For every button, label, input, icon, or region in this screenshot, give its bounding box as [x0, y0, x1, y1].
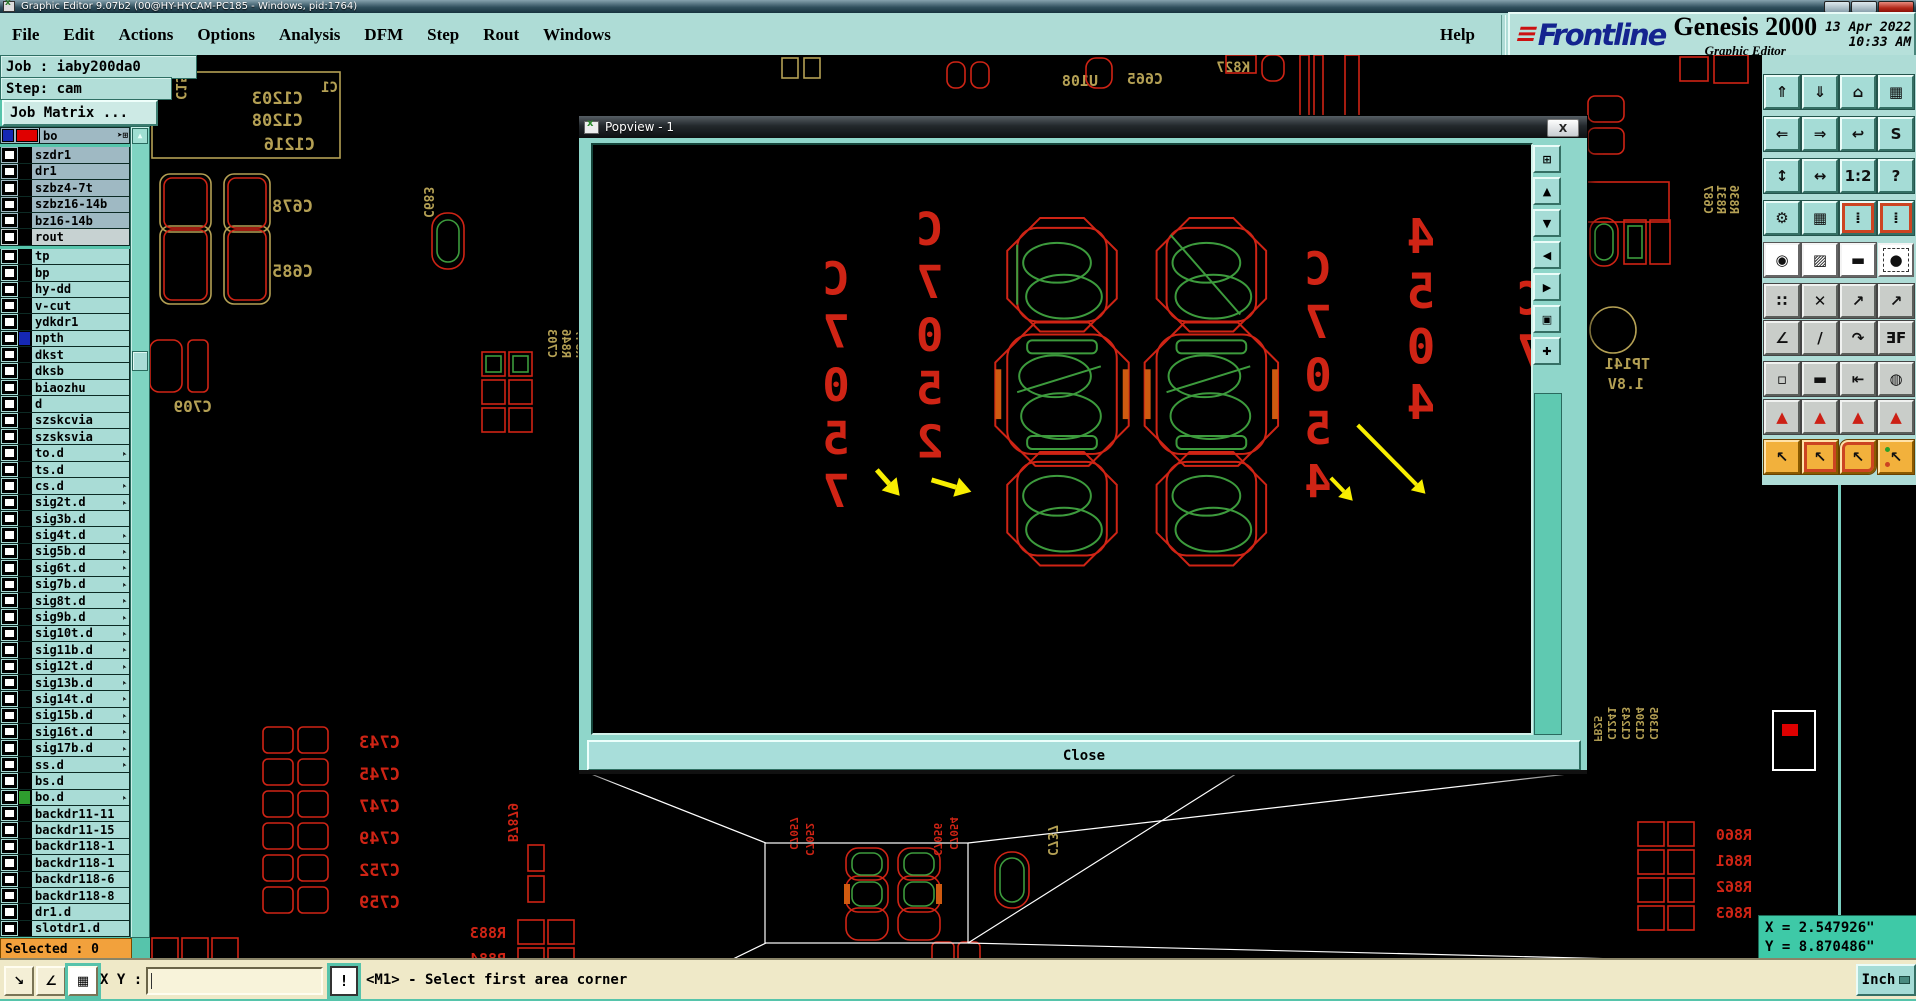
- layer-color-gutter[interactable]: [18, 659, 31, 674]
- layer-name[interactable]: sig7b.d➤: [31, 577, 129, 592]
- layer-row-rout[interactable]: rout: [0, 229, 130, 245]
- layer-row-sig15b.d[interactable]: sig15b.d➤: [0, 708, 130, 724]
- alert-button[interactable]: !: [330, 966, 358, 996]
- layer-checkbox[interactable]: [2, 364, 17, 377]
- layer-row-ydkdr1[interactable]: ydkdr1: [0, 314, 130, 330]
- layer-row-to.d[interactable]: to.d➤: [0, 445, 130, 461]
- layer-checkbox[interactable]: [2, 332, 17, 345]
- layer-name[interactable]: backdr118-1: [31, 839, 129, 854]
- layer-color-gutter[interactable]: [18, 380, 31, 395]
- layer-color-gutter[interactable]: [18, 708, 31, 723]
- layer-row-slotdr1.d[interactable]: slotdr1.d: [0, 921, 130, 937]
- layer-name[interactable]: sig5b.d➤: [31, 544, 129, 559]
- layer-name[interactable]: sig2t.d➤: [31, 495, 129, 510]
- window-title: Graphic Editor 9.07b2 (00@HY-HYCAM-PC185…: [21, 1, 357, 12]
- layer-color-gutter[interactable]: [18, 213, 31, 228]
- layer-checkbox[interactable]: [2, 479, 17, 492]
- truncate-3-button[interactable]: ▲: [1840, 400, 1876, 434]
- popview-canvas[interactable]: C7057C7052C70544504C7: [591, 143, 1533, 735]
- layer-row-bs.d[interactable]: bs.d: [0, 773, 130, 789]
- layer-name[interactable]: sig6t.d➤: [31, 560, 129, 575]
- layer-row-sig8t.d[interactable]: sig8t.d➤: [0, 593, 130, 609]
- coordinate-y: Y = 8.870486": [1765, 938, 1916, 956]
- layer-checkbox[interactable]: [2, 709, 17, 722]
- tools-setup-button[interactable]: ⚙: [1764, 201, 1800, 235]
- layer-checkbox[interactable]: [2, 283, 17, 296]
- segment-button[interactable]: ▬: [1802, 362, 1838, 396]
- select-pad-button[interactable]: ●: [1878, 243, 1914, 277]
- layer-name[interactable]: szbz4-7t: [31, 180, 129, 195]
- layer-color-gutter[interactable]: [18, 527, 31, 542]
- job-matrix-button[interactable]: Job Matrix ...: [2, 100, 158, 126]
- grid-button[interactable]: ▦: [1802, 201, 1838, 235]
- surface-button[interactable]: ◍: [1878, 362, 1914, 396]
- menu-item-help[interactable]: Help: [1428, 25, 1487, 45]
- layer-row-szskcvia[interactable]: szskcvia: [0, 413, 130, 429]
- layer-checkbox[interactable]: [2, 414, 17, 427]
- layer-row-sig2t.d[interactable]: sig2t.d➤: [0, 495, 130, 511]
- layer-checkbox[interactable]: [2, 381, 17, 394]
- copy-feature-button[interactable]: ↗: [1840, 284, 1876, 318]
- layer-checkbox[interactable]: [2, 266, 17, 279]
- layer-name[interactable]: sig11b.d➤: [31, 642, 129, 657]
- layer-checkbox[interactable]: [2, 181, 17, 194]
- route-path-button[interactable]: S: [1878, 117, 1914, 151]
- layer-color-gutter[interactable]: [18, 478, 31, 493]
- layer-row-backdr11-11[interactable]: backdr11-11: [0, 806, 130, 822]
- layer-color-gutter[interactable]: [18, 197, 31, 212]
- layer-name[interactable]: bs.d: [31, 773, 129, 788]
- layer-name[interactable]: bp: [31, 265, 129, 280]
- layer-color-gutter[interactable]: [18, 511, 31, 526]
- layer-checkbox[interactable]: [2, 230, 17, 243]
- popup-pan-right-button[interactable]: ▶: [1533, 273, 1561, 301]
- truncate-2-button[interactable]: ▲: [1802, 400, 1838, 434]
- layer-row-backdr11-15[interactable]: backdr11-15: [0, 822, 130, 838]
- layer-name[interactable]: sig15b.d➤: [31, 708, 129, 723]
- pcb-shape: [298, 887, 328, 913]
- layer-row-sig13b.d[interactable]: sig13b.d➤: [0, 675, 130, 691]
- layer-color-gutter[interactable]: [18, 806, 31, 821]
- layer-name[interactable]: bo➤⊞: [39, 128, 129, 143]
- layer-color-gutter[interactable]: [18, 147, 31, 162]
- popview-scroll-trough[interactable]: [1534, 393, 1562, 735]
- layer-color-gutter[interactable]: [18, 593, 31, 608]
- layer-row-sig3b.d[interactable]: sig3b.d: [0, 511, 130, 527]
- layer-checkbox[interactable]: [2, 905, 17, 918]
- layer-name[interactable]: sig3b.d: [31, 511, 129, 526]
- layer-name[interactable]: dkst: [31, 347, 129, 362]
- layer-color-gutter[interactable]: [18, 164, 31, 179]
- dimension-button[interactable]: ⇤: [1840, 362, 1876, 396]
- zoom-out-button[interactable]: ⇓: [1802, 75, 1838, 109]
- layer-color-gutter[interactable]: [18, 396, 31, 411]
- units-dropdown[interactable]: Inch: [1856, 964, 1916, 996]
- line-button[interactable]: /: [1802, 321, 1838, 355]
- layer-row-dksb[interactable]: dksb: [0, 363, 130, 379]
- angle-button[interactable]: ∠: [1764, 321, 1800, 355]
- layer-name[interactable]: to.d➤: [31, 445, 129, 460]
- menu-item-dfm[interactable]: DFM: [352, 25, 415, 45]
- layer-name[interactable]: backdr118-8: [31, 888, 129, 903]
- layer-name[interactable]: backdr118-6: [31, 872, 129, 887]
- measure-button[interactable]: ▬: [1840, 243, 1876, 277]
- layer-name[interactable]: backdr11-11: [31, 806, 129, 821]
- snap-angle-button[interactable]: ∠: [36, 966, 66, 996]
- layer-color-gutter[interactable]: [18, 229, 31, 244]
- layer-checkbox[interactable]: [2, 692, 17, 705]
- layer-name[interactable]: dksb: [31, 363, 129, 378]
- layer-color-gutter[interactable]: [18, 577, 31, 592]
- resize-mode-button[interactable]: ↘: [4, 966, 34, 996]
- layer-row-backdr118-8[interactable]: backdr118-8: [0, 888, 130, 904]
- layer-name[interactable]: dr1.d: [31, 904, 129, 919]
- layer-row-tp[interactable]: tp: [0, 249, 130, 265]
- layer-name[interactable]: szdr1: [31, 147, 129, 162]
- layer-name[interactable]: cs.d➤: [31, 478, 129, 493]
- menu-item-edit[interactable]: Edit: [51, 25, 106, 45]
- layer-checkbox[interactable]: [2, 315, 17, 328]
- layer-name[interactable]: sig16t.d➤: [31, 724, 129, 739]
- layer-checkbox[interactable]: [2, 610, 17, 623]
- layer-checkbox[interactable]: [2, 299, 17, 312]
- layer-row-ss.d[interactable]: ss.d➤: [0, 757, 130, 773]
- layer-checkbox[interactable]: [2, 250, 17, 263]
- layer-row-sig9b.d[interactable]: sig9b.d➤: [0, 609, 130, 625]
- layer-checkbox[interactable]: [2, 774, 17, 787]
- layer-checkbox[interactable]: [2, 528, 17, 541]
- layer-color-gutter[interactable]: [18, 872, 31, 887]
- layer-checkbox[interactable]: [2, 922, 17, 935]
- layer-color-gutter[interactable]: [18, 298, 31, 313]
- layer-color-gutter[interactable]: [18, 413, 31, 428]
- pcb-shape: [844, 884, 850, 904]
- layer-color-gutter[interactable]: [18, 249, 31, 264]
- select-inside-button[interactable]: ↖: [1802, 440, 1838, 474]
- layer-color-gutter[interactable]: [18, 904, 31, 919]
- layer-color-gutter[interactable]: [18, 282, 31, 297]
- layer-name[interactable]: ydkdr1: [31, 314, 129, 329]
- layer-name[interactable]: bo.d➤: [31, 790, 129, 805]
- layer-checkbox[interactable]: [2, 545, 17, 558]
- layer-color-gutter[interactable]: [18, 773, 31, 788]
- layer-row-sig7b.d[interactable]: sig7b.d➤: [0, 577, 130, 593]
- menu-item-file[interactable]: File: [0, 25, 51, 45]
- net-display-2-button[interactable]: ⁞: [1878, 201, 1914, 235]
- layer-row-backdr118-1[interactable]: backdr118-1: [0, 855, 130, 871]
- layer-color-gutter[interactable]: [18, 314, 31, 329]
- pcb-shape: [224, 174, 270, 232]
- layer-list-scrollbar[interactable]: ▲: [130, 126, 150, 938]
- layer-checkbox[interactable]: [2, 791, 17, 804]
- layer-name[interactable]: szskcvia: [31, 413, 129, 428]
- layer-name[interactable]: dr1: [31, 164, 129, 179]
- layer-color-gutter[interactable]: [18, 740, 31, 755]
- pan-right-button[interactable]: ⇒: [1802, 117, 1838, 151]
- layer-color-gutter[interactable]: [18, 642, 31, 657]
- layer-color-gutter[interactable]: [18, 265, 31, 280]
- svg-text:0: 0: [822, 358, 850, 412]
- pcb-shape: [904, 882, 934, 906]
- pcb-shape: [1026, 275, 1102, 319]
- layer-row-npth[interactable]: npth: [0, 331, 130, 347]
- layer-color-gutter[interactable]: [18, 839, 31, 854]
- pcb-label-C683: C683: [420, 187, 435, 218]
- layer-checkbox[interactable]: [2, 856, 17, 869]
- layer-checkbox[interactable]: [2, 446, 17, 459]
- layer-row-ts.d[interactable]: ts.d: [0, 462, 130, 478]
- popview-close-icon[interactable]: X: [1547, 119, 1579, 137]
- layer-name[interactable]: sig12t.d➤: [31, 659, 129, 674]
- layer-color-gutter[interactable]: [18, 724, 31, 739]
- undo-view-button[interactable]: ↩: [1840, 117, 1876, 151]
- shrink-view-button[interactable]: ↔: [1802, 159, 1838, 193]
- layer-color-gutter[interactable]: [18, 855, 31, 870]
- menu-item-windows[interactable]: Windows: [531, 25, 623, 45]
- layer-row-backdr118-6[interactable]: backdr118-6: [0, 872, 130, 888]
- layer-checkbox[interactable]: [2, 594, 17, 607]
- pcb-label-C665: C665: [1127, 70, 1163, 88]
- window-xy-button[interactable]: ▦: [1878, 75, 1914, 109]
- pcb-shape: [1000, 858, 1024, 902]
- layer-row-bp[interactable]: bp: [0, 265, 130, 281]
- layer-row-bz16-14b[interactable]: bz16-14b: [0, 213, 130, 229]
- layer-name[interactable]: d: [31, 396, 129, 411]
- layer-row-szsksvia[interactable]: szsksvia: [0, 429, 130, 445]
- layer-name[interactable]: sig10t.d➤: [31, 626, 129, 641]
- layer-row-hy-dd[interactable]: hy-dd: [0, 282, 130, 298]
- layer-name[interactable]: sig13b.d➤: [31, 675, 129, 690]
- layer-checkbox[interactable]: [2, 463, 17, 476]
- pcb-shape: [1595, 224, 1613, 260]
- layer-checkbox[interactable]: [2, 676, 17, 689]
- xy-input[interactable]: [146, 967, 323, 995]
- tile-view-button[interactable]: ▦: [68, 966, 98, 996]
- layer-color-gutter[interactable]: [18, 790, 31, 805]
- select-outside-button[interactable]: ↖: [1840, 440, 1876, 474]
- layer-checkbox[interactable]: [2, 873, 17, 886]
- layer-checkbox[interactable]: [2, 627, 17, 640]
- layer-checkbox[interactable]: [2, 643, 17, 656]
- pcb-shape: [298, 791, 328, 817]
- layer-name[interactable]: szsksvia: [31, 429, 129, 444]
- layer-color-gutter[interactable]: [18, 180, 31, 195]
- layer-row-biaozhu[interactable]: biaozhu: [0, 380, 130, 396]
- layer-name[interactable]: hy-dd: [31, 282, 129, 297]
- layer-row-sig12t.d[interactable]: sig12t.d➤: [0, 659, 130, 675]
- layer-row-sig14t.d[interactable]: sig14t.d➤: [0, 691, 130, 707]
- layer-row-sig11b.d[interactable]: sig11b.d➤: [0, 642, 130, 658]
- layer-name[interactable]: npth: [31, 331, 129, 346]
- layer-color-gutter[interactable]: [18, 331, 31, 346]
- layer-checkbox[interactable]: [2, 165, 17, 178]
- layer-name[interactable]: backdr11-15: [31, 822, 129, 837]
- layer-color-gutter[interactable]: [18, 822, 31, 837]
- layer-checkbox[interactable]: [2, 148, 17, 161]
- layer-name[interactable]: biaozhu: [31, 380, 129, 395]
- layer-checkbox[interactable]: [2, 840, 17, 853]
- menu-item-analysis[interactable]: Analysis: [267, 25, 352, 45]
- layer-row-sig16t.d[interactable]: sig16t.d➤: [0, 724, 130, 740]
- pcb-shape: [1588, 128, 1624, 154]
- layer-row-cs.d[interactable]: cs.d➤: [0, 478, 130, 494]
- scroll-up-icon[interactable]: ▲: [132, 128, 148, 144]
- popview-titlebar[interactable]: Popview - 1 X: [579, 116, 1587, 138]
- truncate-4-button[interactable]: ▲: [1878, 400, 1914, 434]
- layer-checkbox[interactable]: [2, 578, 17, 591]
- layer-name[interactable]: ts.d: [31, 462, 129, 477]
- layer-checkbox[interactable]: [2, 496, 17, 509]
- layer-color-gutter[interactable]: [18, 921, 31, 936]
- layer-row-dr1[interactable]: dr1: [0, 164, 130, 180]
- pcb-shape: [782, 58, 798, 78]
- pcb-shape: [528, 876, 544, 902]
- layer-color-swatch: [19, 332, 30, 345]
- svg-text:C: C: [1516, 272, 1531, 326]
- layer-checkbox[interactable]: [2, 561, 17, 574]
- flash-edit-button[interactable]: ▨: [1802, 243, 1838, 277]
- home-view-button[interactable]: ⌂: [1840, 75, 1876, 109]
- layer-checkbox[interactable]: [2, 741, 17, 754]
- mirror-button[interactable]: ƎF: [1878, 321, 1914, 355]
- delete-button[interactable]: ✕: [1802, 284, 1838, 318]
- pad-swap-button[interactable]: ▫: [1764, 362, 1800, 396]
- layer-marker-icon: ➤: [119, 728, 129, 736]
- layer-color-gutter[interactable]: [18, 626, 31, 641]
- popview-title: Popview - 1: [605, 120, 674, 134]
- layer-marker-icon: ➤: [119, 482, 129, 490]
- layer-checkbox[interactable]: [2, 512, 17, 525]
- truncate-1-button[interactable]: ▲: [1764, 400, 1800, 434]
- layer-row-sig4t.d[interactable]: sig4t.d➤: [0, 527, 130, 543]
- layer-name[interactable]: ss.d➤: [31, 757, 129, 772]
- popup-pan-left-button[interactable]: ◀: [1533, 241, 1561, 269]
- layer-color-gutter[interactable]: [18, 363, 31, 378]
- layer-name[interactable]: v-cut: [31, 298, 129, 313]
- layer-name[interactable]: backdr118-1: [31, 855, 129, 870]
- layer-checkbox[interactable]: [2, 823, 17, 836]
- layer-name[interactable]: sig4t.d➤: [31, 527, 129, 542]
- layer-row-v-cut[interactable]: v-cut: [0, 298, 130, 314]
- layer-checkbox[interactable]: [2, 660, 17, 673]
- layer-row-szbz16-14b[interactable]: szbz16-14b: [0, 197, 130, 213]
- layer-checkbox[interactable]: [2, 889, 17, 902]
- scale-1-2-button[interactable]: 1:2: [1840, 159, 1876, 193]
- layer-color-gutter[interactable]: [18, 675, 31, 690]
- layer-row-sig5b.d[interactable]: sig5b.d➤: [0, 544, 130, 560]
- zoom-in-button[interactable]: ⇑: [1764, 75, 1800, 109]
- pan-left-button[interactable]: ⇐: [1764, 117, 1800, 151]
- menu-item-step[interactable]: Step: [415, 25, 471, 45]
- layer-checkbox[interactable]: [2, 348, 17, 361]
- layer-row-d[interactable]: d: [0, 396, 130, 412]
- layer-checkbox[interactable]: [2, 397, 17, 410]
- pcb-shape: [298, 727, 328, 753]
- layer-name[interactable]: tp: [31, 249, 129, 264]
- menu-item-options[interactable]: Options: [185, 25, 267, 45]
- expand-view-button[interactable]: ↕: [1764, 159, 1800, 193]
- layer-color-gutter[interactable]: [18, 888, 31, 903]
- layer-row-sig10t.d[interactable]: sig10t.d➤: [0, 626, 130, 642]
- pcb-shape: [1638, 906, 1664, 930]
- popup-zoom-out-button[interactable]: ▼: [1533, 209, 1561, 237]
- layer-name[interactable]: szbz16-14b: [31, 197, 129, 212]
- layer-checkbox[interactable]: [2, 214, 17, 227]
- detach-view-button[interactable]: ⊞: [1533, 145, 1561, 173]
- layer-name[interactable]: slotdr1.d: [31, 921, 129, 936]
- pcb-shape: [486, 356, 501, 372]
- layer-row-szbz4-7t[interactable]: szbz4-7t: [0, 180, 130, 196]
- layer-color-gutter[interactable]: [18, 445, 31, 460]
- layer-checkbox[interactable]: [2, 758, 17, 771]
- move-feature-button[interactable]: ↗: [1878, 284, 1914, 318]
- layer-color-gutter[interactable]: [18, 757, 31, 772]
- layer-color-gutter[interactable]: [18, 544, 31, 559]
- layer-color-gutter[interactable]: [18, 429, 31, 444]
- query-button[interactable]: ?: [1878, 159, 1914, 193]
- layer-row-bo.d[interactable]: bo.d➤: [0, 790, 130, 806]
- arc-button[interactable]: ↷: [1840, 321, 1876, 355]
- layer-name[interactable]: sig9b.d➤: [31, 609, 129, 624]
- popview-icon: [584, 121, 599, 134]
- net-display-1-button[interactable]: ⁞: [1840, 201, 1876, 235]
- svg-text:2: 2: [916, 414, 944, 468]
- layer-row-bo[interactable]: bo➤⊞: [0, 127, 130, 144]
- menu-item-actions[interactable]: Actions: [107, 25, 186, 45]
- layer-color-gutter[interactable]: [18, 462, 31, 477]
- layer-name[interactable]: sig14t.d➤: [31, 691, 129, 706]
- layer-color-gutter[interactable]: [18, 691, 31, 706]
- pcb-shape: [263, 791, 293, 817]
- layer-color-gutter[interactable]: [18, 495, 31, 510]
- layer-color-swatch[interactable]: [16, 129, 38, 142]
- select-net-button[interactable]: ↖: [1878, 440, 1914, 474]
- layer-row-sig17b.d[interactable]: sig17b.d➤: [0, 740, 130, 756]
- layer-color-gutter[interactable]: [18, 609, 31, 624]
- layer-list: bo➤⊞szdr1dr1szbz4-7tszbz16-14bbz16-14bro…: [0, 126, 130, 937]
- zoom-selection-button[interactable]: ◉: [1764, 243, 1800, 277]
- pcb-label-C709: C709: [173, 397, 212, 416]
- select-arrow-button[interactable]: ↖: [1764, 440, 1800, 474]
- layer-name[interactable]: rout: [31, 229, 129, 244]
- chain-select-button[interactable]: ∷: [1764, 284, 1800, 318]
- layer-marker-icon: ➤: [119, 629, 129, 637]
- minimap[interactable]: [1772, 710, 1816, 771]
- layer-checkbox[interactable]: [2, 198, 17, 211]
- popup-expand-button[interactable]: ✚: [1533, 337, 1561, 365]
- layer-type-swatch[interactable]: [2, 129, 14, 142]
- layer-color-gutter[interactable]: [18, 560, 31, 575]
- popup-zoom-in-button[interactable]: ▲: [1533, 177, 1561, 205]
- layer-checkbox[interactable]: [2, 430, 17, 443]
- layer-color-gutter[interactable]: [18, 347, 31, 362]
- layer-name[interactable]: bz16-14b: [31, 213, 129, 228]
- pcb-shape: [298, 855, 328, 881]
- popview-close-button[interactable]: Close: [587, 740, 1581, 771]
- layer-name[interactable]: sig8t.d➤: [31, 593, 129, 608]
- layer-row-backdr118-1[interactable]: backdr118-1: [0, 839, 130, 855]
- layer-checkbox[interactable]: [2, 725, 17, 738]
- popup-shrink-button[interactable]: ▣: [1533, 305, 1561, 333]
- layer-name[interactable]: sig17b.d➤: [31, 740, 129, 755]
- layer-row-szdr1[interactable]: szdr1: [0, 147, 130, 163]
- layer-row-sig6t.d[interactable]: sig6t.d➤: [0, 560, 130, 576]
- layer-row-dkst[interactable]: dkst: [0, 347, 130, 363]
- layer-row-dr1.d[interactable]: dr1.d: [0, 904, 130, 920]
- layer-checkbox[interactable]: [2, 807, 17, 820]
- scrollbar-thumb[interactable]: [132, 351, 148, 371]
- menu-item-rout[interactable]: Rout: [471, 25, 531, 45]
